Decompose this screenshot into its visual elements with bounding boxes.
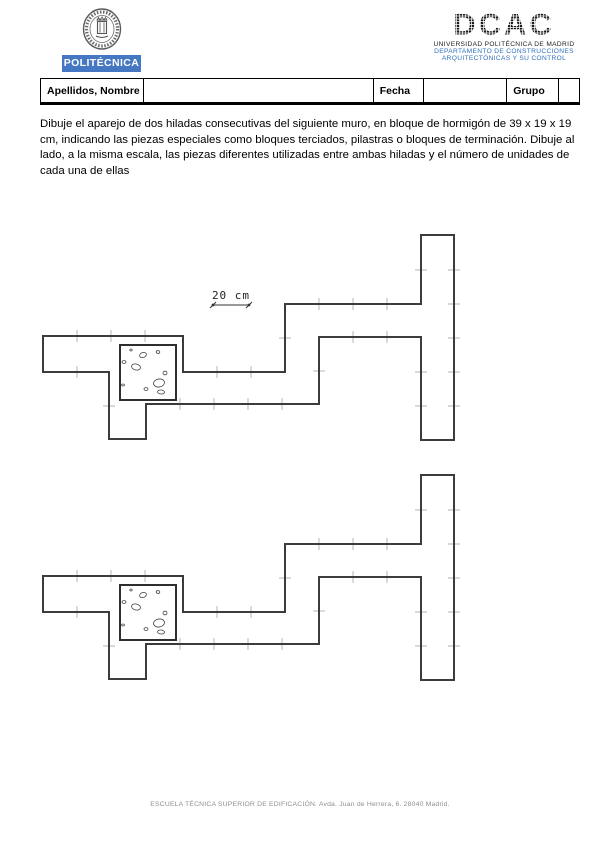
pilaster-block [120, 585, 176, 640]
fecha-label: Fecha [374, 79, 424, 102]
dcac-logo-block: DCAC UNIVERSIDAD POLITÉCNICA DE MADRID D… [428, 10, 580, 62]
scale-dimension: 20 cm [210, 289, 252, 308]
wall-plan-upper: 20 cm [43, 235, 460, 440]
footer-address: ESCUELA TÉCNICA SUPERIOR DE EDIFICACIÓN.… [0, 801, 600, 808]
pilaster-block [120, 345, 176, 400]
apellidos-input-cell[interactable] [144, 79, 374, 102]
apellidos-label: Apellidos, Nombre [41, 79, 144, 102]
upm-seal-logo [82, 7, 122, 51]
exercise-instructions: Dibuje el aparejo de dos hiladas consecu… [40, 117, 578, 179]
dcac-logo: DCAC [453, 11, 555, 40]
dimension-label: 20 cm [212, 289, 250, 302]
politecnica-banner: POLITÉCNICA [62, 55, 141, 72]
university-name: UNIVERSIDAD POLITÉCNICA DE MADRID [428, 41, 580, 48]
fecha-input-cell[interactable] [424, 79, 508, 102]
grupo-label: Grupo [507, 79, 559, 102]
department-name-line1: DEPARTAMENTO DE CONSTRUCCIONES [428, 48, 580, 55]
wall-plan-lower [43, 475, 460, 680]
department-name-line2: ARQUITECTÓNICAS Y SU CONTROL [428, 55, 580, 62]
document-page: POLITÉCNICA DCAC UNIVERSIDAD POLITÉCNICA… [0, 0, 600, 848]
student-info-table: Apellidos, Nombre Fecha Grupo [40, 78, 580, 105]
grupo-input-cell[interactable] [559, 79, 579, 102]
